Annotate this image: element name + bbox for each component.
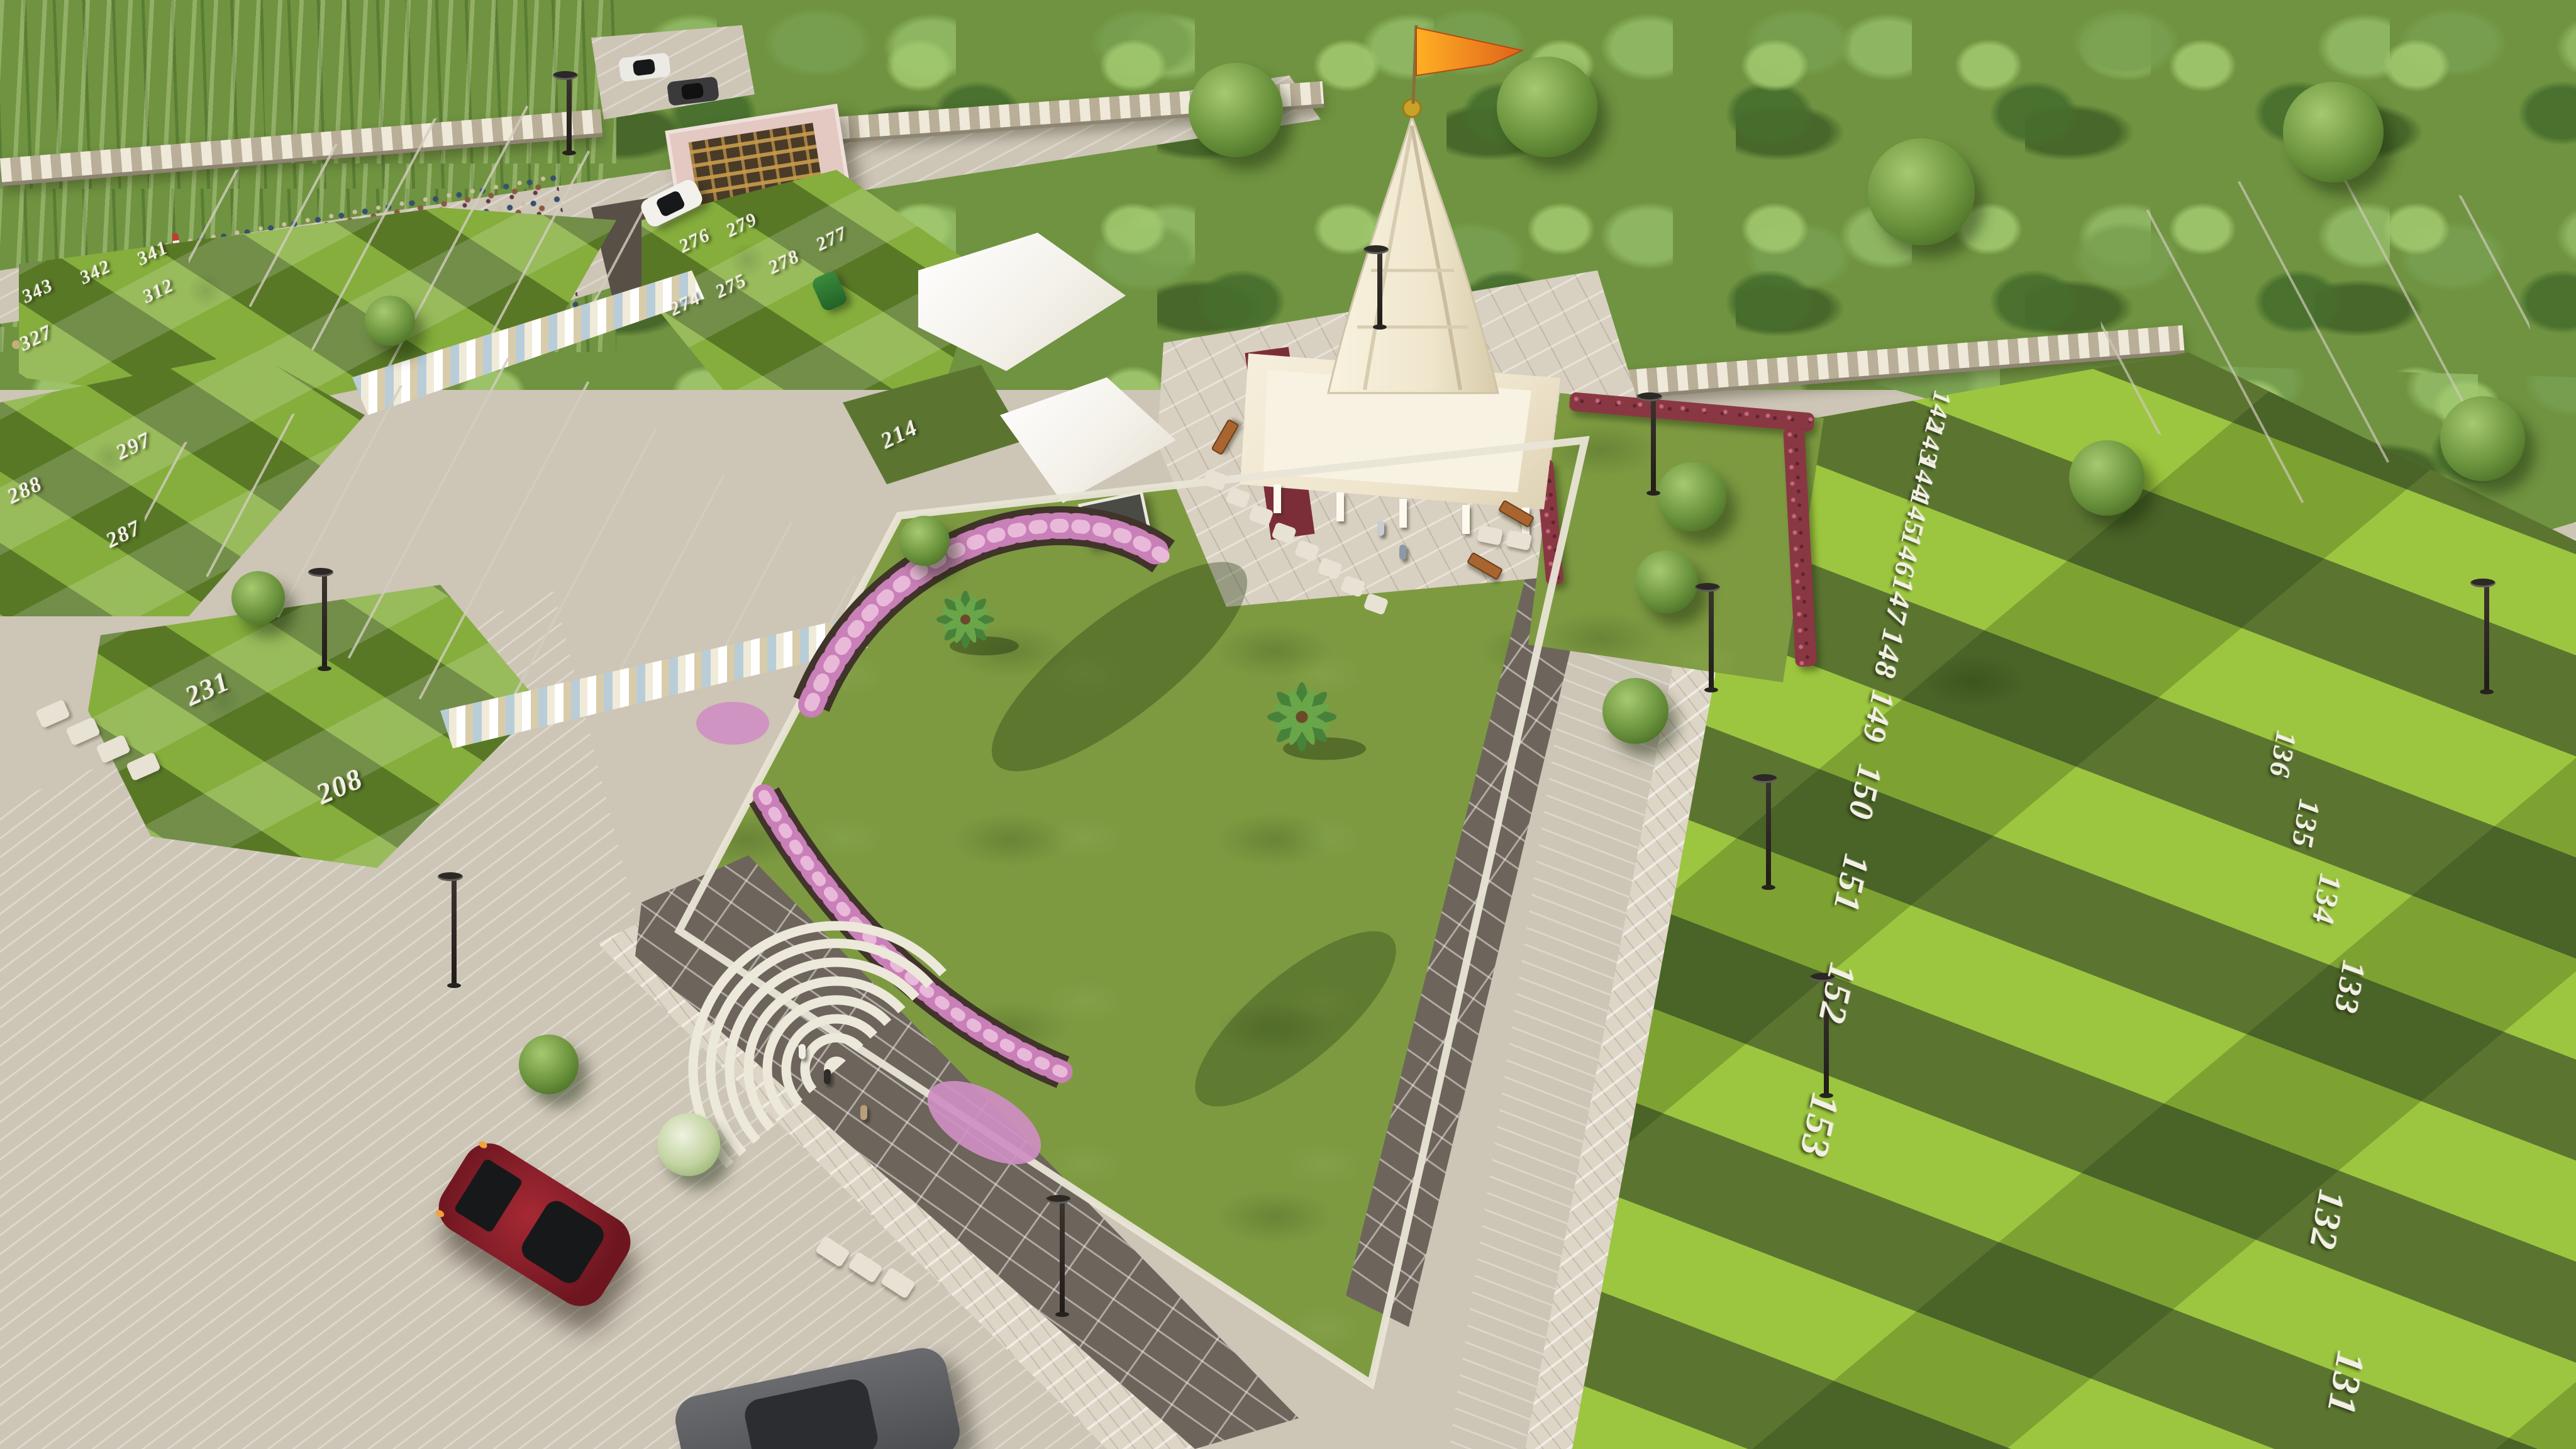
temple-shikhara [1328,99,1498,393]
street-lamp [1709,589,1714,690]
street-tree [1635,550,1698,613]
forest-edge-tree [1868,138,1975,245]
flowering-tree [657,1113,720,1176]
scene-canvas: 341 342 343 312 327 297 288 287 231 208 … [0,0,2576,1449]
street-lamp [1060,1201,1065,1314]
park-curb [679,440,1585,1384]
rear-window [517,1196,608,1288]
person [860,1105,867,1120]
street-lamp [1766,780,1771,887]
tree-over-building [2440,396,2525,481]
tree-shadow [1171,904,1420,1133]
car-roof [742,1377,881,1449]
palm-tree [936,591,1019,655]
street-lamp [1651,399,1656,493]
person [1399,545,1406,560]
palm-tree [1267,682,1366,760]
street-tree [519,1035,579,1094]
street-lamp [2484,585,2489,692]
street-lamp [452,879,457,985]
street-tree [365,296,415,346]
person [1377,521,1384,536]
windshield [453,1158,523,1233]
park-tree [899,516,950,566]
forest-edge-tree [1189,63,1283,157]
street-lamp [567,77,572,153]
forest-edge-tree [2283,82,2384,182]
concentric-arcs [634,867,1039,1272]
street-lamp [1377,252,1382,327]
street-tree [1657,462,1726,531]
person [824,1069,831,1084]
tree-shadow [965,530,1275,803]
street-lamp [322,574,327,669]
forest-edge-tree [1497,57,1597,157]
car-roof [655,190,686,218]
street-tree [1602,678,1668,744]
park-and-temple-graphics [0,0,2576,1449]
flower-patch-west [696,702,769,745]
street-tree [231,571,285,625]
person [799,1044,806,1059]
tree-over-building [2069,440,2145,516]
